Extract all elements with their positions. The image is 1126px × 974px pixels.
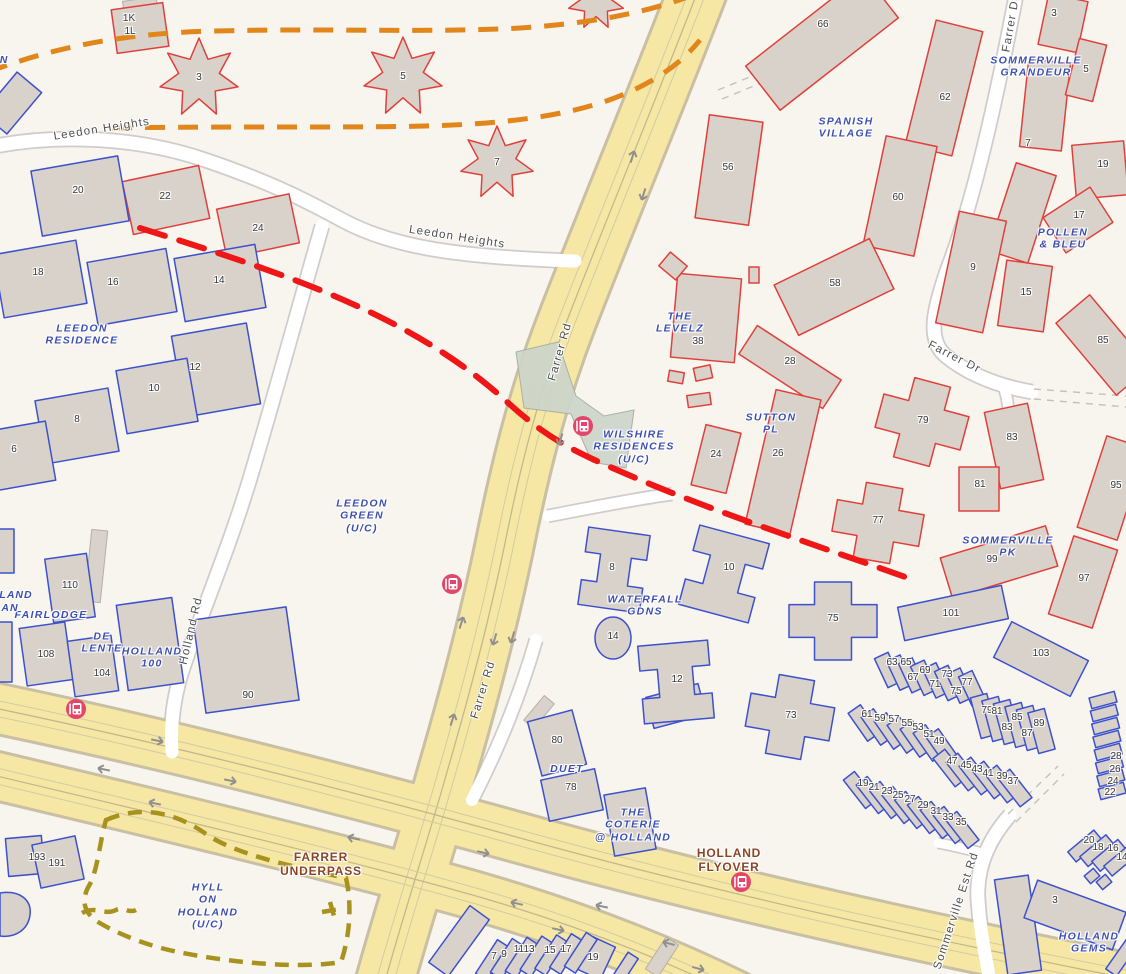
building-footprint[interactable]	[193, 607, 299, 713]
building-footprint[interactable]	[87, 249, 177, 326]
building-footprint[interactable]	[595, 617, 631, 659]
building-footprint[interactable]	[31, 156, 129, 236]
building-footprint[interactable]	[45, 553, 95, 622]
unbuilt-road-dashed	[1034, 399, 1126, 407]
building-footprint[interactable]	[67, 635, 118, 697]
bus-stop-icon[interactable]	[441, 573, 463, 595]
building-footprint[interactable]	[0, 892, 30, 936]
building-footprint[interactable]	[745, 390, 821, 535]
building-footprint[interactable]	[364, 37, 442, 113]
building-footprint[interactable]	[1077, 436, 1126, 540]
base-map-svg	[0, 0, 1126, 974]
building-footprint[interactable]	[0, 421, 56, 491]
bus-stop-icon[interactable]	[65, 698, 87, 720]
building-footprint[interactable]	[541, 769, 604, 822]
building-footprint[interactable]	[789, 582, 877, 660]
building-footprint[interactable]	[670, 273, 741, 362]
building-footprint[interactable]	[749, 267, 759, 283]
building-footprint[interactable]	[679, 525, 770, 623]
bus-stop-icon[interactable]	[730, 871, 752, 893]
building-footprint[interactable]	[774, 239, 894, 336]
building-footprint[interactable]	[461, 126, 533, 196]
bus-stop-icon[interactable]	[572, 415, 594, 437]
building-footprint[interactable]	[668, 370, 685, 383]
building-footprint[interactable]	[0, 240, 87, 318]
building-footprint[interactable]	[0, 622, 12, 682]
building-footprint[interactable]	[691, 425, 741, 494]
building-footprint[interactable]	[578, 527, 650, 613]
building-footprint[interactable]	[1072, 141, 1126, 199]
building-footprint[interactable]	[32, 836, 84, 888]
building-footprint[interactable]	[998, 260, 1053, 332]
building-footprint[interactable]	[959, 467, 999, 511]
building-footprint[interactable]	[869, 371, 975, 473]
building-footprint[interactable]	[528, 710, 587, 776]
building-footprint[interactable]	[936, 211, 1007, 332]
building-footprint[interactable]	[687, 392, 711, 407]
construction-boundary-dashed	[82, 909, 136, 913]
building-footprint[interactable]	[116, 358, 198, 434]
building-footprint[interactable]	[116, 598, 183, 691]
building-footprint[interactable]	[693, 365, 712, 381]
building-footprint[interactable]	[746, 0, 899, 110]
building-footprint[interactable]	[994, 622, 1089, 697]
building-footprint[interactable]	[863, 136, 937, 256]
building-footprint[interactable]	[19, 622, 73, 686]
building-footprint[interactable]	[111, 3, 169, 54]
building-footprint[interactable]	[1056, 295, 1126, 395]
building-footprint[interactable]	[160, 38, 238, 114]
building-footprint[interactable]	[1020, 59, 1071, 151]
lane-arrow-icon	[97, 764, 110, 774]
building-footprint[interactable]	[1048, 536, 1117, 628]
building-footprint[interactable]	[122, 165, 210, 234]
building-footprint[interactable]	[0, 529, 14, 573]
building-footprint[interactable]	[0, 72, 42, 134]
construction-boundary-dashed	[322, 902, 340, 916]
building-footprint[interactable]	[741, 670, 839, 764]
map-canvas[interactable]: LEEDON RESIDENCELEEDON GREEN (U/C)WILSHI…	[0, 0, 1126, 974]
building-footprint[interactable]	[905, 20, 983, 156]
building-footprint[interactable]	[569, 0, 624, 27]
building-footprint[interactable]	[695, 115, 763, 226]
building-footprint[interactable]	[638, 640, 715, 724]
